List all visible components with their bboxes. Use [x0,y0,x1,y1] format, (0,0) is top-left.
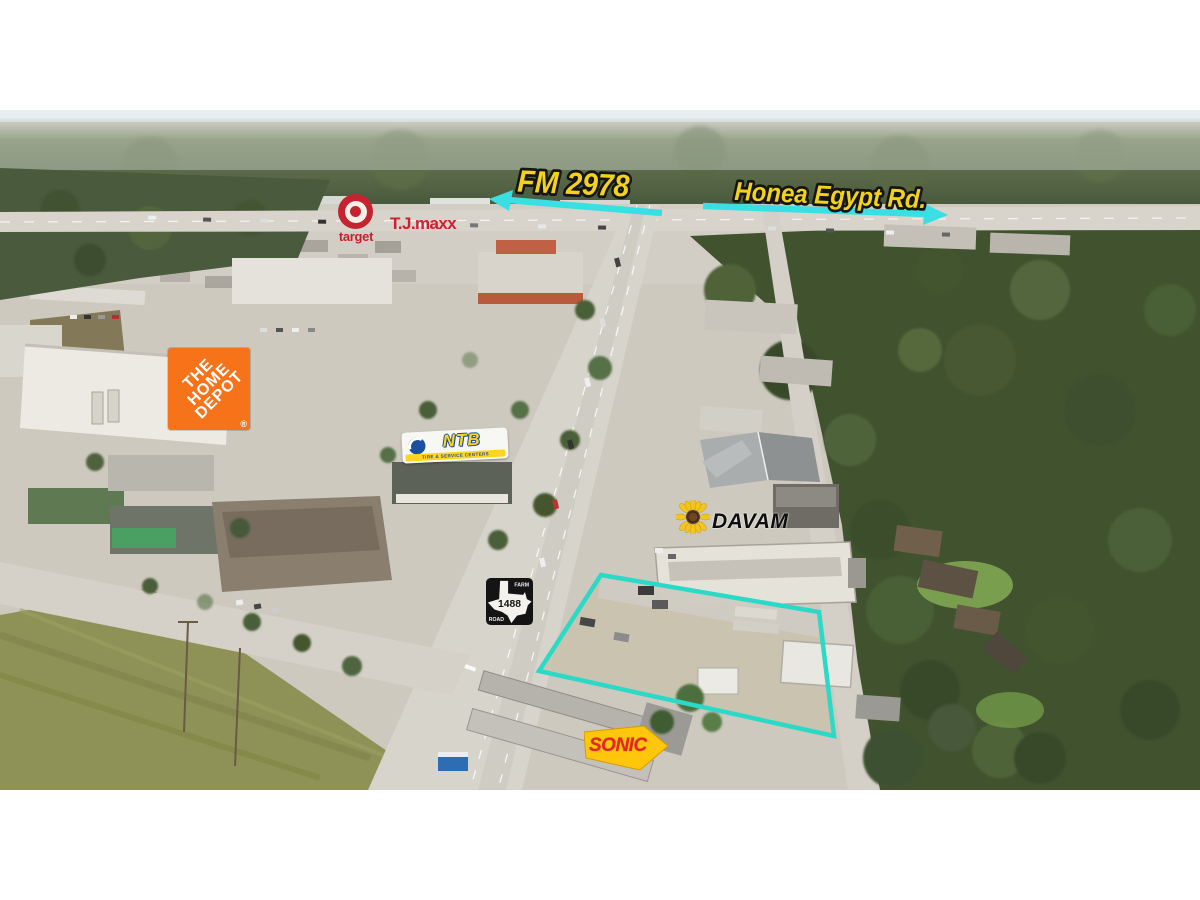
sunflower-icon [676,500,710,534]
listing-image: FM 2978 Honea Egypt Rd. target T.J.maxx … [0,0,1200,900]
target-logo: target [326,229,386,244]
sonic-wordmark: SONIC [589,735,647,757]
shield-word-road: ROAD [489,617,504,623]
home-depot-logo: THE HOME DEPOT ® [168,348,250,430]
davam-logo: DAVAM [712,510,788,534]
shield-word-farm: FARM [514,582,529,588]
sonic-logo: SONIC [584,726,668,772]
ntb-sign: NTB TIRE & SERVICE CENTERS [401,427,508,464]
annotation-overlay: FM 2978 Honea Egypt Rd. [0,110,1200,790]
target-bullseye-icon [338,194,373,229]
aerial-photo: FM 2978 Honea Egypt Rd. target T.J.maxx … [0,110,1200,790]
tjmaxx-logo: T.J.maxx [390,214,456,234]
registered-mark: ® [240,419,247,429]
fm2978-label: FM 2978 [517,164,631,204]
shield-route-number: 1488 [498,599,521,610]
fm1488-shield: 1488 FARM ROAD [486,578,533,625]
property-outline [539,575,834,736]
ntb-wordmark: NTB [442,430,481,452]
